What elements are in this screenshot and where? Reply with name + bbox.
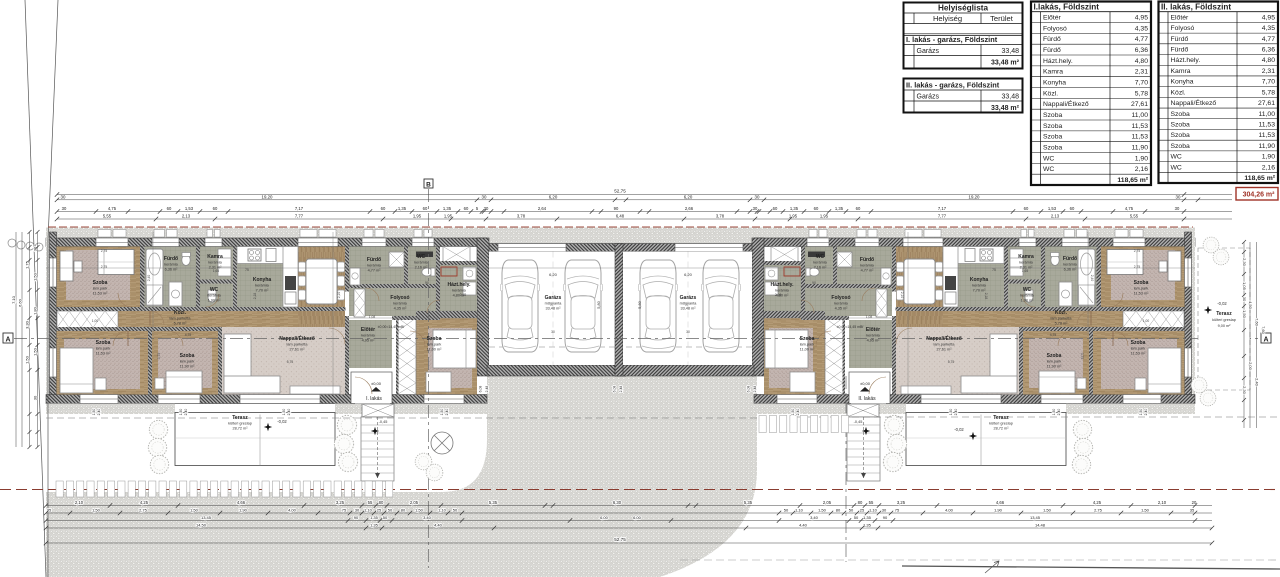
svg-text:4,25: 4,25	[1093, 500, 1102, 505]
svg-text:külteri greslap: külteri greslap	[989, 421, 1013, 425]
svg-text:2,16 m²: 2,16 m²	[415, 265, 429, 269]
svg-text:lam.parketta: lam.parketta	[170, 316, 192, 320]
svg-text:1,35: 1,35	[370, 523, 379, 528]
svg-text:4,25: 4,25	[140, 500, 149, 505]
svg-text:4,00: 4,00	[288, 508, 297, 513]
svg-text:1,50: 1,50	[1043, 508, 1052, 513]
svg-text:Szoba: Szoba	[1131, 340, 1146, 346]
svg-text:1,80: 1,80	[33, 306, 38, 315]
svg-text:11,00: 11,00	[1131, 112, 1148, 119]
svg-text:7,77: 7,77	[938, 213, 947, 218]
svg-text:6,00: 6,00	[600, 515, 609, 520]
svg-text:2,31: 2,31	[1135, 69, 1148, 76]
svg-text:1,95: 1,95	[820, 213, 829, 218]
svg-text:33,48: 33,48	[1001, 94, 1019, 101]
svg-text:80: 80	[858, 500, 863, 505]
svg-text:Garázs: Garázs	[680, 295, 697, 301]
svg-text:2,40: 2,40	[287, 409, 291, 416]
svg-text:4,95: 4,95	[1135, 14, 1148, 21]
svg-text:2,48: 2,48	[485, 386, 489, 393]
svg-text:Kamra: Kamra	[1171, 68, 1191, 75]
svg-text:11,00: 11,00	[1258, 111, 1275, 118]
svg-text:3,75: 3,75	[1080, 353, 1084, 360]
svg-text:Garázs: Garázs	[917, 94, 940, 101]
svg-text:műgyanta: műgyanta	[680, 301, 698, 305]
svg-text:5,78 m²: 5,78 m²	[1055, 321, 1069, 325]
svg-text:1,95: 1,95	[444, 213, 453, 218]
svg-text:3,75: 3,75	[157, 353, 161, 360]
svg-text:1,50: 1,50	[1052, 409, 1056, 416]
svg-text:6,30: 6,30	[613, 500, 622, 505]
svg-text:2,40: 2,40	[97, 409, 101, 416]
svg-text:5,35: 5,35	[744, 500, 753, 505]
svg-text:27,61: 27,61	[1131, 101, 1148, 108]
svg-text:7,77: 7,77	[295, 213, 304, 218]
svg-text:4,95: 4,95	[1262, 14, 1275, 21]
svg-text:11,00 m²: 11,00 m²	[427, 347, 442, 351]
svg-text:1,50: 1,50	[415, 508, 424, 513]
svg-text:Folyosó: Folyosó	[1171, 25, 1195, 32]
svg-text:2,18: 2,18	[984, 293, 988, 300]
svg-text:4,35 m²: 4,35 m²	[835, 306, 849, 310]
svg-text:2,05: 2,05	[410, 500, 419, 505]
svg-text:külteri greslap: külteri greslap	[1212, 318, 1236, 322]
svg-text:4,77 m²: 4,77 m²	[861, 268, 875, 272]
svg-text:2,10: 2,10	[775, 293, 782, 297]
svg-text:5,78: 5,78	[1135, 90, 1148, 97]
svg-text:Közl.: Közl.	[1171, 89, 1186, 96]
svg-text:1,50: 1,50	[92, 409, 96, 416]
svg-text:Fürdő: Fürdő	[1043, 36, 1061, 43]
svg-text:2,10: 2,10	[337, 292, 341, 299]
svg-text:Szoba: Szoba	[1171, 121, 1190, 128]
svg-text:1,50: 1,50	[1141, 508, 1150, 513]
svg-text:3,40: 3,40	[423, 515, 432, 520]
svg-text:11,00 m²: 11,00 m²	[800, 347, 815, 351]
svg-text:1,95: 1,95	[789, 213, 798, 218]
svg-text:27,61 m²: 27,61 m²	[290, 347, 306, 351]
svg-text:30: 30	[33, 395, 38, 400]
svg-text:2,48: 2,48	[619, 386, 623, 393]
svg-text:Szoba: Szoba	[1043, 123, 1062, 130]
svg-text:5,75: 5,75	[948, 360, 955, 364]
svg-text:1,08: 1,08	[369, 315, 376, 319]
svg-text:lam.park: lam.park	[1134, 286, 1149, 290]
svg-text:Szoba: Szoba	[1171, 143, 1190, 150]
svg-text:30: 30	[62, 206, 67, 211]
svg-text:1,05: 1,05	[1242, 282, 1247, 291]
svg-text:kerámia: kerámia	[255, 283, 269, 287]
svg-text:kerámia: kerámia	[393, 301, 407, 305]
svg-text:304,26 m²: 304,26 m²	[1243, 192, 1276, 199]
svg-text:6,08: 6,08	[479, 386, 483, 393]
svg-text:90: 90	[128, 308, 132, 312]
svg-text:WC: WC	[1171, 154, 1182, 161]
svg-text:55: 55	[869, 500, 874, 505]
svg-text:60: 60	[167, 206, 172, 211]
svg-text:kerámia: kerámia	[860, 263, 874, 267]
svg-text:4,35: 4,35	[1262, 25, 1275, 32]
svg-text:Szoba: Szoba	[1043, 144, 1062, 151]
svg-text:1,90 m²: 1,90 m²	[1021, 298, 1035, 302]
svg-text:14,50: 14,50	[196, 523, 207, 528]
svg-text:19,20: 19,20	[969, 194, 981, 199]
svg-text:4,50: 4,50	[1248, 301, 1253, 310]
svg-text:Garázs: Garázs	[545, 295, 562, 301]
svg-text:I.lakás, Földszint: I.lakás, Földszint	[1034, 3, 1100, 12]
svg-text:1,65: 1,65	[213, 269, 220, 273]
svg-text:2,66: 2,66	[685, 206, 694, 211]
svg-text:4,95 m²: 4,95 m²	[362, 338, 376, 342]
svg-text:Terület: Terület	[990, 14, 1014, 23]
svg-text:II. lakás, Földszint: II. lakás, Földszint	[1161, 3, 1231, 12]
svg-text:3,40: 3,40	[810, 515, 819, 520]
svg-text:-0,45: -0,45	[854, 420, 863, 424]
svg-text:13,45: 13,45	[1030, 515, 1041, 520]
svg-text:Kamra: Kamra	[207, 254, 223, 260]
svg-text:50: 50	[849, 508, 854, 513]
svg-text:WC: WC	[417, 254, 426, 260]
svg-text:1,35: 1,35	[790, 206, 799, 211]
svg-text:7,70 m²: 7,70 m²	[256, 288, 270, 292]
svg-text:30: 30	[755, 194, 760, 199]
svg-text:60: 60	[814, 206, 819, 211]
svg-text:4,95 m²: 4,95 m²	[867, 338, 881, 342]
svg-text:27,61: 27,61	[1258, 100, 1275, 107]
svg-text:1,50: 1,50	[818, 508, 827, 513]
svg-text:Fürdő: Fürdő	[164, 256, 178, 262]
svg-text:Szoba: Szoba	[1134, 280, 1149, 286]
svg-text:Szoba: Szoba	[96, 340, 111, 346]
svg-text:3,78: 3,78	[716, 213, 725, 218]
svg-text:Előtér: Előtér	[1043, 14, 1061, 21]
svg-text:lam.parketta: lam.parketta	[934, 342, 956, 346]
svg-text:1,75: 1,75	[25, 260, 30, 269]
svg-text:2,64: 2,64	[538, 206, 547, 211]
svg-text:30: 30	[33, 246, 38, 251]
svg-text:Fürdő: Fürdő	[1171, 36, 1189, 43]
svg-text:1,90: 1,90	[239, 508, 248, 513]
svg-text:11,53: 11,53	[1131, 123, 1148, 130]
svg-text:±0,00=14,45 mBf: ±0,00=14,45 mBf	[837, 325, 864, 329]
svg-text:30: 30	[551, 330, 555, 334]
svg-text:Szoba: Szoba	[1043, 134, 1062, 141]
svg-text:6,08: 6,08	[613, 386, 617, 393]
svg-text:30: 30	[355, 508, 360, 513]
svg-text:27,61 m²: 27,61 m²	[937, 347, 953, 351]
svg-text:1,50: 1,50	[282, 409, 286, 416]
svg-text:7,60: 7,60	[1255, 318, 1260, 327]
svg-text:2,40: 2,40	[954, 409, 958, 416]
svg-text:Helyiséglista: Helyiséglista	[938, 4, 989, 13]
svg-text:5,78 m²: 5,78 m²	[174, 321, 188, 325]
svg-text:Konyha: Konyha	[1171, 79, 1194, 86]
svg-text:A: A	[5, 337, 10, 344]
svg-text:Előtér: Előtér	[866, 327, 880, 333]
svg-text:52,75: 52,75	[614, 537, 626, 542]
svg-text:5,78: 5,78	[1262, 89, 1275, 96]
svg-text:11,53 m²: 11,53 m²	[93, 291, 108, 295]
svg-text:30: 30	[61, 194, 66, 199]
svg-text:4,35 m²: 4,35 m²	[394, 306, 408, 310]
svg-text:3,25: 3,25	[897, 500, 906, 505]
svg-text:6,20: 6,20	[549, 194, 558, 199]
svg-text:műgyanta: műgyanta	[545, 301, 563, 305]
svg-text:2,10: 2,10	[460, 293, 467, 297]
svg-text:11,53: 11,53	[1131, 134, 1148, 141]
svg-text:-0,02: -0,02	[1217, 301, 1227, 306]
svg-text:Közl.: Közl.	[1055, 310, 1068, 316]
svg-text:25: 25	[377, 508, 382, 513]
svg-text:2,16: 2,16	[1135, 166, 1148, 173]
svg-text:90: 90	[883, 515, 888, 520]
svg-text:2,16: 2,16	[1262, 164, 1275, 171]
svg-text:55: 55	[368, 500, 373, 505]
svg-text:lam.park: lam.park	[800, 342, 815, 346]
svg-text:Konyha: Konyha	[253, 277, 272, 283]
svg-text:60: 60	[213, 206, 218, 211]
svg-text:6,20: 6,20	[549, 272, 558, 277]
svg-text:1,35: 1,35	[398, 206, 407, 211]
svg-text:1,10: 1,10	[795, 508, 804, 513]
svg-text:3,30: 3,30	[25, 320, 30, 329]
svg-text:Szoba: Szoba	[93, 280, 108, 286]
svg-text:90: 90	[614, 206, 619, 211]
svg-text:14,48: 14,48	[1035, 523, 1046, 528]
svg-text:60: 60	[773, 206, 778, 211]
svg-text:1,50: 1,50	[1139, 409, 1143, 416]
svg-text:90: 90	[1109, 308, 1113, 312]
svg-text:lam.park: lam.park	[180, 359, 195, 363]
svg-text:50: 50	[388, 508, 393, 513]
svg-text:WC: WC	[1043, 166, 1054, 173]
svg-text:30: 30	[482, 194, 487, 199]
svg-text:3,25: 3,25	[336, 500, 345, 505]
svg-text:Terasz: Terasz	[1216, 311, 1232, 317]
svg-text:1,10: 1,10	[438, 508, 447, 513]
svg-text:30: 30	[1175, 206, 1180, 211]
svg-text:lam.parketta: lam.parketta	[287, 342, 309, 346]
svg-text:I. lakás - garázs, Földszint: I. lakás - garázs, Földszint	[906, 35, 998, 44]
svg-text:WC: WC	[1023, 287, 1032, 293]
svg-text:1,50: 1,50	[949, 409, 953, 416]
svg-text:Garázs: Garázs	[917, 48, 940, 55]
svg-text:7,17: 7,17	[295, 206, 304, 211]
svg-text:2,40: 2,40	[147, 275, 151, 282]
svg-text:2,13: 2,13	[182, 213, 191, 218]
svg-text:Szoba: Szoba	[800, 336, 815, 342]
svg-text:5,80: 5,80	[597, 301, 601, 308]
svg-text:külteri greslap: külteri greslap	[228, 421, 252, 425]
svg-text:kerámia: kerámia	[775, 288, 789, 292]
svg-text:Szoba: Szoba	[180, 353, 195, 359]
svg-text:6,48: 6,48	[616, 213, 625, 218]
svg-text:1,35: 1,35	[835, 206, 844, 211]
svg-text:Fürdő: Fürdő	[1063, 256, 1077, 262]
svg-text:75: 75	[992, 268, 996, 272]
svg-text:4,75: 4,75	[1050, 333, 1057, 337]
svg-text:1,53: 1,53	[1048, 206, 1057, 211]
svg-text:11,53: 11,53	[1258, 132, 1275, 139]
svg-text:11,53 m²: 11,53 m²	[96, 351, 111, 355]
svg-text:4,35: 4,35	[1135, 25, 1148, 32]
svg-text:5,80: 5,80	[638, 301, 642, 308]
svg-text:118,65 m²: 118,65 m²	[1117, 177, 1148, 184]
svg-text:2,40: 2,40	[184, 409, 188, 416]
svg-text:4,40: 4,40	[799, 523, 808, 528]
svg-text:50: 50	[784, 508, 789, 513]
svg-text:1,10: 1,10	[869, 508, 878, 513]
svg-text:lam.park: lam.park	[427, 342, 442, 346]
svg-text:1,50: 1,50	[791, 409, 795, 416]
svg-text:4,66: 4,66	[996, 500, 1005, 505]
svg-text:7,70: 7,70	[1262, 79, 1275, 86]
svg-text:Előtér: Előtér	[361, 327, 375, 333]
svg-text:11,90 m²: 11,90 m²	[1047, 364, 1062, 368]
svg-text:1,50: 1,50	[179, 409, 183, 416]
svg-text:B: B	[426, 182, 431, 189]
svg-text:80: 80	[401, 508, 406, 513]
svg-text:Közl.: Közl.	[1043, 90, 1058, 97]
svg-text:Szoba: Szoba	[1171, 111, 1190, 118]
svg-text:13,45: 13,45	[201, 515, 212, 520]
svg-text:75: 75	[245, 268, 249, 272]
svg-text:9,00 m²: 9,00 m²	[1218, 324, 1232, 328]
svg-text:Nappali/Étkező: Nappali/Étkező	[279, 334, 315, 342]
svg-text:Előtér: Előtér	[1171, 14, 1189, 21]
svg-text:Fürdő: Fürdő	[1171, 47, 1189, 54]
svg-text:4,77 m²: 4,77 m²	[368, 268, 382, 272]
svg-text:2,13: 2,13	[1051, 213, 1060, 218]
svg-text:1,35: 1,35	[443, 206, 452, 211]
svg-text:11,53 m²: 11,53 m²	[1131, 351, 1146, 355]
svg-text:Nappali/Étkező: Nappali/Étkező	[926, 334, 962, 342]
svg-text:kerámia: kerámia	[1019, 260, 1033, 264]
svg-text:90: 90	[425, 281, 429, 285]
svg-text:6,00: 6,00	[633, 515, 642, 520]
svg-text:Konyha: Konyha	[970, 277, 989, 283]
svg-text:11,90: 11,90	[1258, 143, 1275, 150]
svg-text:II. lakás: II. lakás	[858, 396, 876, 402]
svg-text:2,75: 2,75	[101, 249, 108, 253]
svg-text:Házt.hely.: Házt.hely.	[448, 282, 472, 288]
svg-text:60: 60	[381, 206, 386, 211]
svg-text:11,90 m²: 11,90 m²	[180, 364, 195, 368]
svg-text:2,40: 2,40	[1090, 275, 1094, 282]
svg-text:2,75: 2,75	[1094, 508, 1103, 513]
svg-text:2,40: 2,40	[796, 409, 800, 416]
svg-text:-0,02: -0,02	[277, 419, 287, 424]
svg-text:Nappali/Étkező: Nappali/Étkező	[1171, 98, 1217, 107]
svg-text:Terasz: Terasz	[993, 415, 1009, 421]
svg-text:4,77: 4,77	[1135, 36, 1148, 43]
svg-text:Folyosó: Folyosó	[390, 295, 409, 301]
svg-text:kerámia: kerámia	[972, 283, 986, 287]
svg-text:52,75: 52,75	[614, 189, 626, 194]
svg-text:kerámia: kerámia	[164, 262, 178, 266]
svg-text:Folyosó: Folyosó	[1043, 25, 1067, 32]
svg-text:2,40: 2,40	[1144, 409, 1148, 416]
svg-text:kerámia: kerámia	[452, 288, 466, 292]
svg-text:30: 30	[484, 206, 489, 211]
svg-text:1,50: 1,50	[33, 347, 38, 356]
svg-text:2,30: 2,30	[1242, 258, 1247, 267]
svg-text:1,90: 1,90	[1262, 154, 1275, 161]
svg-text:5,55: 5,55	[1130, 213, 1139, 218]
svg-text:11,53: 11,53	[1258, 121, 1275, 128]
svg-text:±0,00: ±0,00	[371, 381, 382, 386]
svg-text:33,48 m²: 33,48 m²	[991, 60, 1020, 67]
svg-text:Helyiség: Helyiség	[933, 14, 962, 23]
svg-text:11,90: 11,90	[1131, 144, 1148, 151]
svg-text:2,75: 2,75	[1134, 265, 1141, 269]
svg-text:2,05: 2,05	[823, 500, 832, 505]
svg-text:2,48: 2,48	[753, 386, 757, 393]
svg-text:50: 50	[383, 515, 388, 520]
svg-text:Szoba: Szoba	[1043, 112, 1062, 119]
svg-text:2,75: 2,75	[139, 508, 148, 513]
svg-text:1,35: 1,35	[863, 515, 872, 520]
svg-text:6,20: 6,20	[684, 194, 693, 199]
svg-text:kerámia: kerámia	[1020, 293, 1034, 297]
svg-text:75: 75	[342, 508, 347, 513]
svg-text:28,72 m²: 28,72 m²	[233, 426, 249, 430]
svg-text:lam.park: lam.park	[93, 286, 108, 290]
svg-text:2,31: 2,31	[1262, 68, 1275, 75]
svg-text:90: 90	[812, 281, 816, 285]
svg-text:33,48 m²: 33,48 m²	[681, 306, 697, 310]
svg-text:kerámia: kerámia	[367, 263, 381, 267]
svg-text:6,20: 6,20	[684, 272, 693, 277]
svg-text:50: 50	[453, 508, 458, 513]
svg-text:kerámia: kerámia	[866, 333, 880, 337]
svg-text:WC: WC	[816, 254, 825, 260]
svg-text:Folyosó: Folyosó	[831, 295, 850, 301]
svg-text:5,75: 5,75	[287, 360, 294, 364]
svg-text:±0,00=14,45 mBf: ±0,00=14,45 mBf	[378, 325, 405, 329]
svg-text:30: 30	[686, 330, 690, 334]
svg-text:5,35: 5,35	[489, 500, 498, 505]
svg-text:1,50: 1,50	[1242, 310, 1247, 319]
svg-text:2,16 m²: 2,16 m²	[814, 265, 828, 269]
svg-text:-0,45: -0,45	[379, 420, 388, 424]
svg-text:kerámia: kerámia	[1063, 262, 1077, 266]
svg-text:1,90 m²: 1,90 m²	[208, 298, 222, 302]
svg-text:-0,02: -0,02	[954, 427, 964, 432]
svg-text:11,53 m²: 11,53 m²	[1134, 291, 1149, 295]
svg-text:1,35: 1,35	[863, 523, 872, 528]
svg-text:4,80: 4,80	[1262, 57, 1275, 64]
svg-text:19,20: 19,20	[262, 194, 274, 199]
svg-text:4,75: 4,75	[1125, 206, 1134, 211]
svg-text:WC: WC	[1043, 155, 1054, 162]
svg-text:4,77: 4,77	[1262, 36, 1275, 43]
svg-text:kerámia: kerámia	[834, 301, 848, 305]
svg-text:7,70: 7,70	[1135, 79, 1148, 86]
svg-text:lam.park: lam.park	[1047, 359, 1062, 363]
svg-text:2,10: 2,10	[1158, 500, 1167, 505]
svg-text:1,90: 1,90	[1135, 155, 1148, 162]
svg-text:lam.park: lam.park	[1131, 346, 1146, 350]
svg-text:1,90: 1,90	[994, 508, 1003, 513]
svg-text:Szoba: Szoba	[427, 336, 442, 342]
svg-text:1,50: 1,50	[440, 409, 444, 416]
svg-text:2,00: 2,00	[1248, 362, 1253, 371]
svg-text:60: 60	[423, 206, 428, 211]
svg-text:Terasz: Terasz	[232, 415, 248, 421]
svg-text:1,35: 1,35	[370, 515, 379, 520]
svg-text:118,65 m²: 118,65 m²	[1244, 175, 1275, 182]
